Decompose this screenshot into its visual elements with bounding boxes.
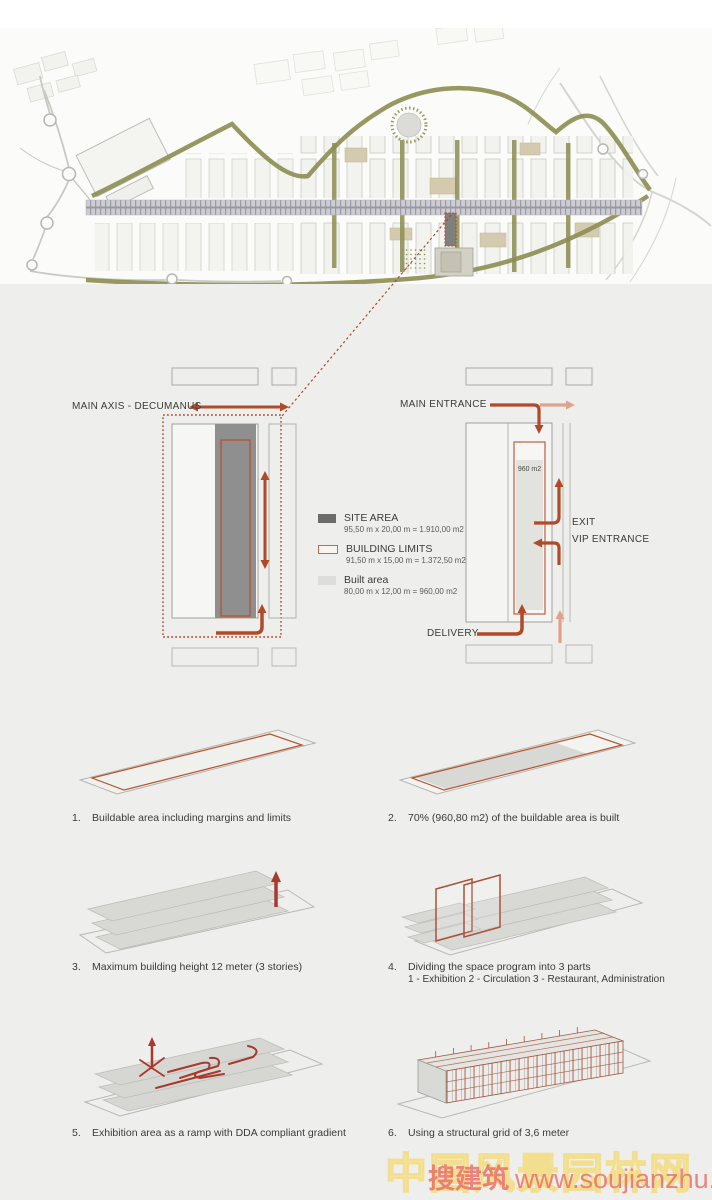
tree-grid <box>402 248 428 272</box>
step-text: Using a structural grid of 3,6 meter <box>408 1127 569 1139</box>
legend: SITE AREA 95,50 m x 20,00 m = 1.910,00 m… <box>318 512 498 605</box>
step-caption-2: 2. 70% (960,80 m2) of the buildable area… <box>388 812 698 824</box>
legend-label: BUILDING LIMITS <box>346 543 466 555</box>
structural-grid-box <box>418 1027 623 1103</box>
building-row-west2 <box>95 223 295 271</box>
plaza-court <box>441 252 461 272</box>
legend-item-built-area: Built area 80,00 m x 12,00 m = 960,00 m2 <box>318 574 498 596</box>
step-caption-5: 5. Exhibition area as a ramp with DDA co… <box>72 1127 372 1139</box>
block-north-east <box>272 368 296 385</box>
block-south <box>466 645 552 663</box>
ramp-arrowhead <box>148 1037 156 1046</box>
step4-diagram <box>380 853 680 958</box>
legend-detail: 95,50 m x 20,00 m = 1.910,00 m2 <box>344 525 464 534</box>
vertical-flow-arrow <box>261 471 270 569</box>
step-number: 4. <box>388 961 408 973</box>
step-number: 3. <box>72 961 92 973</box>
step-text: Buildable area including margins and lim… <box>92 812 291 824</box>
legend-label: SITE AREA <box>344 512 464 524</box>
left-diagram <box>163 368 296 666</box>
step-caption-6: 6. Using a structural grid of 3,6 meter <box>388 1127 698 1139</box>
height-arrow <box>271 871 281 907</box>
built-area-swatch <box>318 576 336 585</box>
legend-item-site-area: SITE AREA 95,50 m x 20,00 m = 1.910,00 m… <box>318 512 498 534</box>
exit-label: EXIT <box>572 517 595 528</box>
presentation-sheet: MAIN AXIS - DECUMANUS MAIN ENTRANCE 960 … <box>0 0 712 1200</box>
site-watermark: 搜建筑www.soujianzhu.cn <box>428 1157 712 1196</box>
legend-label: Built area <box>344 574 457 586</box>
axis-arrow <box>189 403 289 412</box>
masterplan-map <box>0 28 712 284</box>
step-caption-3: 3. Maximum building height 12 meter (3 s… <box>72 961 372 973</box>
watermark-cn: 搜建筑 <box>428 1164 509 1194</box>
watermark-url: www.soujianzhu.cn <box>515 1164 712 1194</box>
step-caption-4: 4. Dividing the space program into 3 par… <box>388 961 698 973</box>
vip-entrance-label: VIP ENTRANCE <box>572 534 649 545</box>
building-row-north <box>298 136 633 198</box>
axis-centerline <box>86 207 642 209</box>
step3-diagram <box>60 853 360 958</box>
site-area-swatch <box>318 514 336 523</box>
step-text: Maximum building height 12 meter (3 stor… <box>92 961 302 973</box>
legend-item-building-limits: BUILDING LIMITS 91,50 m x 15,00 m = 1.37… <box>318 543 498 565</box>
step-text: Dividing the space program into 3 parts <box>408 961 591 973</box>
step-caption-4-line2: 1 - Exhibition 2 - Circulation 3 - Resta… <box>408 974 665 985</box>
legend-detail: 91,50 m x 15,00 m = 1.372,50 m2 <box>346 556 466 565</box>
step-number: 2. <box>388 812 408 824</box>
block-south-east <box>272 648 296 666</box>
step5-diagram <box>60 1016 360 1121</box>
step2-diagram <box>380 710 680 810</box>
step1-diagram <box>60 710 360 810</box>
step-number: 1. <box>72 812 92 824</box>
built-area-label: 960 m2 <box>514 466 545 473</box>
main-entrance-label: MAIN ENTRANCE <box>400 399 484 410</box>
step-text: 70% (960,80 m2) of the buildable area is… <box>408 812 619 824</box>
step-number: 5. <box>72 1127 92 1139</box>
legend-detail: 80,00 m x 12,00 m = 960,00 m2 <box>344 587 457 596</box>
building-row-west1 <box>180 153 295 198</box>
block-north <box>466 368 552 385</box>
block-north-east <box>566 368 592 385</box>
step6-diagram <box>380 1016 680 1121</box>
main-axis-label: MAIN AXIS - DECUMANUS <box>72 401 202 412</box>
block-north <box>172 368 258 385</box>
step-text: Exhibition area as a ramp with DDA compl… <box>92 1127 346 1139</box>
step-caption-1: 1. Buildable area including margins and … <box>72 812 372 824</box>
east-block <box>269 424 296 618</box>
block-south-east <box>566 645 592 663</box>
block-south <box>172 648 258 666</box>
building-limits-swatch <box>318 545 338 554</box>
delivery-label: DELIVERY <box>427 628 479 639</box>
site-marker <box>445 213 456 246</box>
built-area-fill <box>516 460 543 610</box>
step-number: 6. <box>388 1127 408 1139</box>
